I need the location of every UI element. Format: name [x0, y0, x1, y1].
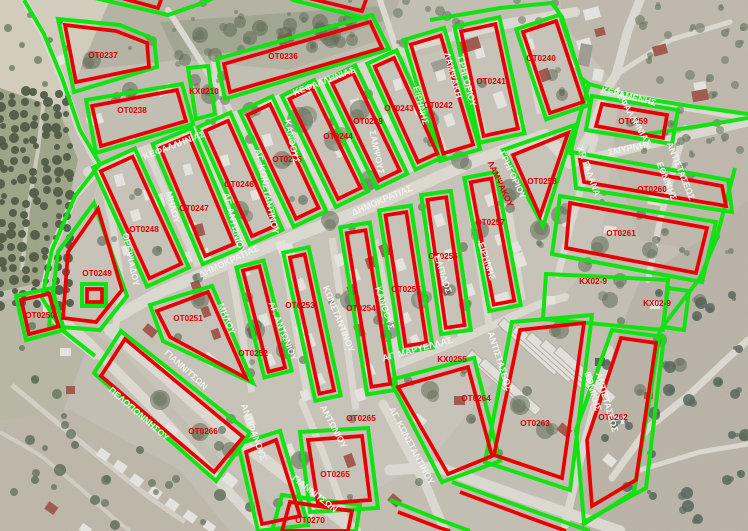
- svg-text:ΟΤ0266: ΟΤ0266: [188, 427, 218, 436]
- svg-text:ΟΤ0246: ΟΤ0246: [224, 180, 254, 189]
- svg-text:ΟΤ0236: ΟΤ0236: [268, 52, 298, 61]
- svg-text:ΚΧ02-9: ΚΧ02-9: [579, 277, 607, 286]
- svg-text:ΟΤ0258: ΟΤ0258: [527, 177, 557, 186]
- svg-text:ΟΤ0238: ΟΤ0238: [117, 106, 147, 115]
- svg-text:ΟΤ0260: ΟΤ0260: [637, 185, 667, 194]
- svg-text:ΟΤ0241: ΟΤ0241: [476, 77, 506, 86]
- svg-text:ΟΤ0252: ΟΤ0252: [238, 349, 268, 358]
- svg-text:ΟΤ0261: ΟΤ0261: [606, 229, 636, 238]
- svg-text:ΟΤ0250: ΟΤ0250: [25, 311, 55, 320]
- svg-text:ΟΤ0249: ΟΤ0249: [82, 269, 112, 278]
- svg-text:ΟΤ0264: ΟΤ0264: [461, 394, 491, 403]
- svg-text:ΟΤ0248: ΟΤ0248: [129, 225, 159, 234]
- svg-text:ΟΤ0243: ΟΤ0243: [384, 104, 414, 113]
- svg-text:ΟΤ0270: ΟΤ0270: [295, 516, 325, 525]
- svg-text:ΟΤ0237: ΟΤ0237: [88, 51, 118, 60]
- svg-text:ΟΤ0263: ΟΤ0263: [520, 419, 550, 428]
- svg-text:ΟΤ0244: ΟΤ0244: [323, 132, 353, 141]
- svg-text:ΚΧ0255: ΚΧ0255: [437, 355, 467, 364]
- svg-text:ΟΤ0239: ΟΤ0239: [353, 117, 383, 126]
- svg-text:ΟΤ0253: ΟΤ0253: [285, 301, 315, 310]
- svg-text:ΚΧ0210: ΚΧ0210: [189, 87, 219, 96]
- svg-text:ΟΤ0265: ΟΤ0265: [320, 470, 350, 479]
- svg-text:ΚΧ02-9: ΚΧ02-9: [643, 299, 671, 308]
- svg-text:ΟΤ0254: ΟΤ0254: [346, 304, 376, 313]
- svg-text:ΟΤ0247: ΟΤ0247: [179, 204, 209, 213]
- svg-text:ΟΤ0251: ΟΤ0251: [173, 314, 203, 323]
- svg-text:ΟΤ0255: ΟΤ0255: [391, 285, 421, 294]
- svg-text:ΟΤ0265: ΟΤ0265: [346, 414, 376, 423]
- svg-text:ΟΤ0240: ΟΤ0240: [526, 54, 556, 63]
- svg-text:ΟΤ0257: ΟΤ0257: [475, 218, 505, 227]
